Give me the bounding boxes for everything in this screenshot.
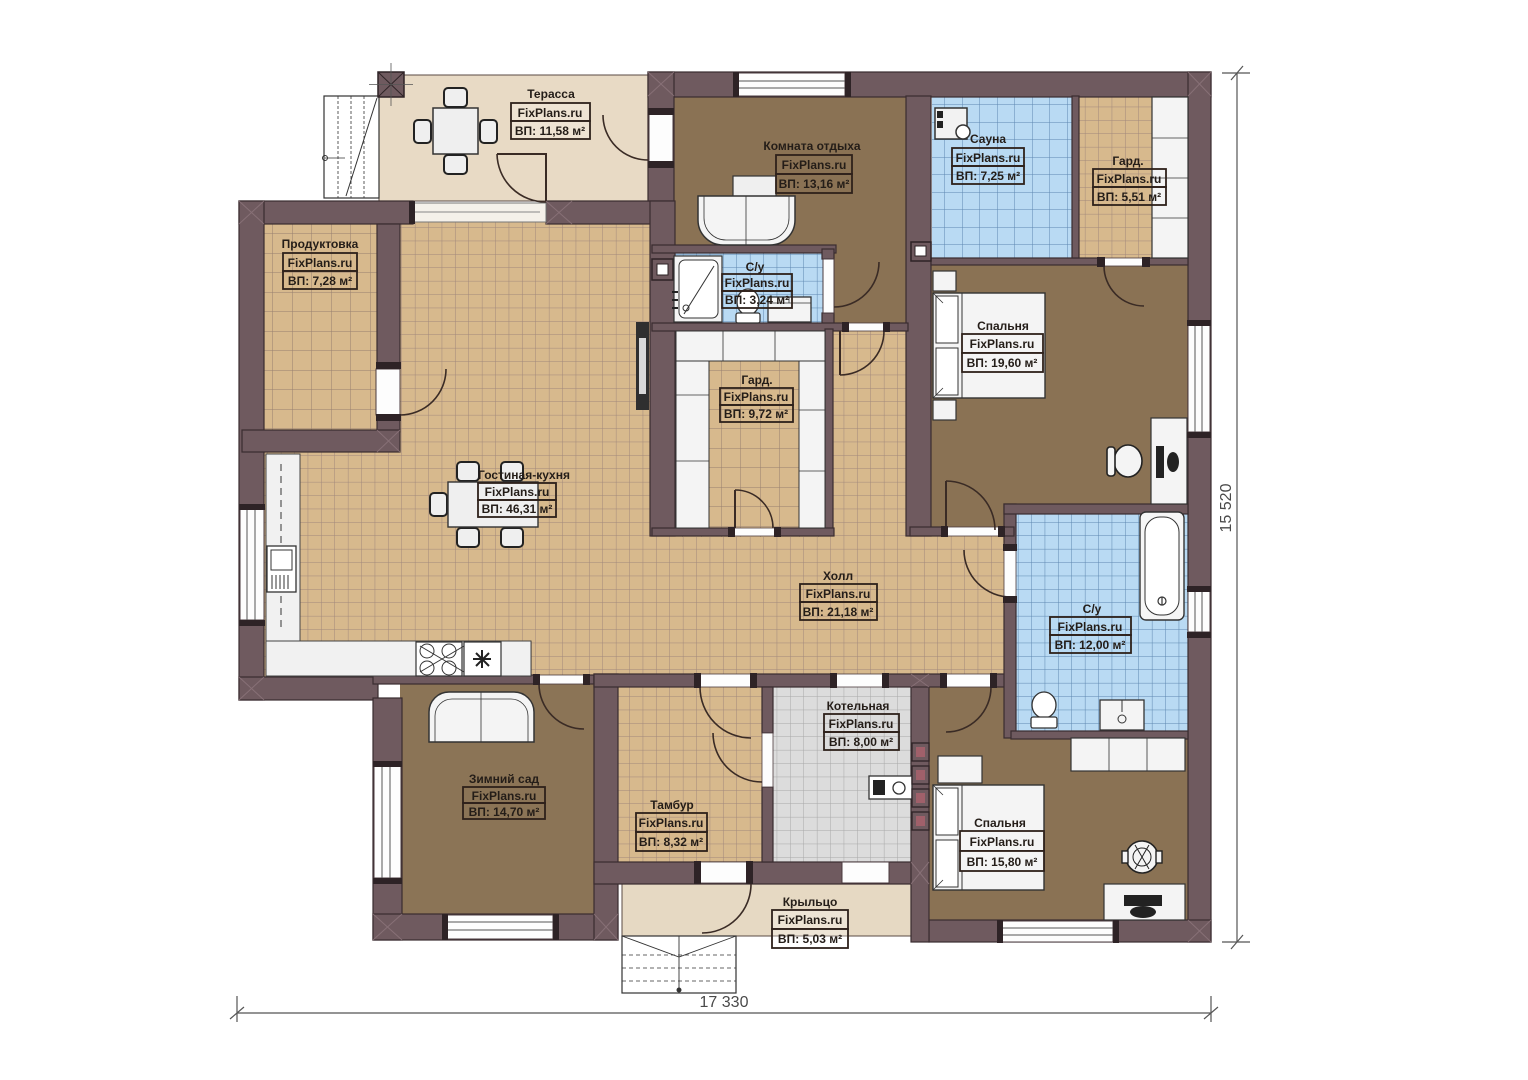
svg-text:FixPlans.ru: FixPlans.ru (778, 913, 843, 927)
svg-text:ВП: 9,72 м²: ВП: 9,72 м² (724, 407, 788, 421)
svg-text:ВП: 19,60 м²: ВП: 19,60 м² (967, 356, 1038, 370)
svg-text:Сауна: Сауна (970, 132, 1006, 146)
svg-text:Гостиная-кухня: Гостиная-кухня (478, 468, 570, 482)
svg-text:Терасса: Терасса (527, 87, 575, 101)
svg-text:FixPlans.ru: FixPlans.ru (724, 390, 789, 404)
svg-text:Зимний сад: Зимний сад (469, 772, 540, 786)
svg-text:ВП: 7,25 м²: ВП: 7,25 м² (956, 169, 1020, 183)
svg-text:FixPlans.ru: FixPlans.ru (725, 276, 790, 290)
svg-text:FixPlans.ru: FixPlans.ru (485, 485, 550, 499)
svg-text:FixPlans.ru: FixPlans.ru (806, 587, 871, 601)
svg-text:FixPlans.ru: FixPlans.ru (288, 256, 353, 270)
svg-text:15 520: 15 520 (1218, 483, 1235, 532)
svg-text:ВП: 3,24 м²: ВП: 3,24 м² (725, 293, 789, 307)
svg-text:Продуктовка: Продуктовка (282, 237, 359, 251)
svg-text:Комната отдыха: Комната отдыха (763, 139, 860, 153)
svg-text:ВП: 12,00 м²: ВП: 12,00 м² (1055, 638, 1126, 652)
svg-text:ВП: 14,70 м²: ВП: 14,70 м² (469, 805, 540, 819)
svg-text:ВП: 8,32 м²: ВП: 8,32 м² (639, 835, 703, 849)
svg-text:Холл: Холл (823, 569, 853, 583)
svg-text:Тамбур: Тамбур (650, 798, 694, 812)
svg-text:FixPlans.ru: FixPlans.ru (970, 337, 1035, 351)
svg-text:ВП: 5,03 м²: ВП: 5,03 м² (778, 932, 842, 946)
svg-text:FixPlans.ru: FixPlans.ru (782, 158, 847, 172)
svg-text:Котельная: Котельная (827, 699, 890, 713)
svg-text:С/у: С/у (746, 260, 765, 274)
svg-text:ВП: 13,16 м²: ВП: 13,16 м² (779, 177, 850, 191)
svg-text:Гард.: Гард. (741, 373, 772, 387)
svg-text:ВП: 7,28 м²: ВП: 7,28 м² (288, 274, 352, 288)
svg-text:ВП: 8,00 м²: ВП: 8,00 м² (829, 735, 893, 749)
svg-text:FixPlans.ru: FixPlans.ru (518, 106, 583, 120)
svg-text:ВП: 46,31 м²: ВП: 46,31 м² (482, 502, 553, 516)
svg-text:FixPlans.ru: FixPlans.ru (1058, 620, 1123, 634)
svg-text:FixPlans.ru: FixPlans.ru (970, 835, 1035, 849)
svg-text:ВП: 21,18 м²: ВП: 21,18 м² (803, 605, 874, 619)
svg-text:Крыльцо: Крыльцо (783, 895, 838, 909)
svg-text:17 330: 17 330 (700, 994, 749, 1011)
svg-text:С/у: С/у (1083, 602, 1102, 616)
svg-text:ВП: 5,51 м²: ВП: 5,51 м² (1097, 190, 1161, 204)
svg-text:FixPlans.ru: FixPlans.ru (472, 789, 537, 803)
svg-text:FixPlans.ru: FixPlans.ru (956, 151, 1021, 165)
svg-text:FixPlans.ru: FixPlans.ru (829, 717, 894, 731)
svg-text:FixPlans.ru: FixPlans.ru (639, 816, 704, 830)
svg-text:Гард.: Гард. (1112, 154, 1143, 168)
svg-text:ВП: 15,80 м²: ВП: 15,80 м² (967, 855, 1038, 869)
svg-text:ВП: 11,58 м²: ВП: 11,58 м² (515, 124, 585, 138)
svg-text:Спальня: Спальня (977, 319, 1029, 333)
svg-text:Спальня: Спальня (974, 816, 1026, 830)
svg-text:FixPlans.ru: FixPlans.ru (1097, 172, 1162, 186)
